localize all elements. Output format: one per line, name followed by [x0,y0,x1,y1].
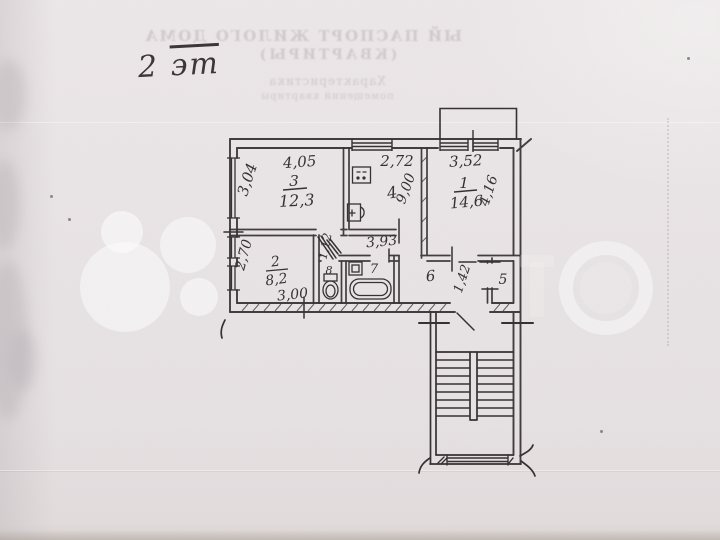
dim-room4-width: 2,72 [379,152,413,170]
dim-room1-width: 3,52 [449,151,483,171]
dim-opening-b: 1,42 [451,263,474,295]
wall-break-squiggle-left [221,320,225,338]
toilet-icon [323,274,338,299]
room2-area: 8,2 [264,271,288,290]
dim-room1-height: 4,16 [476,173,501,209]
stairwell [221,312,535,476]
scanned-floorplan-photo: ЫЙ ПАСПОРТ ЖИЛОГО ДОМА (КВАРТИРЫ) Характ… [0,0,720,540]
stove-icon [353,167,371,183]
room5-number: 5 [499,272,508,288]
balcony-outline [440,109,517,140]
dim-room2-height: 2,70 [232,238,256,273]
dim-room3-height: 3,04 [234,161,261,198]
room7-number: 7 [370,262,379,277]
sink-icon [348,204,365,221]
room3-number: 3 [289,172,299,190]
window-room1-balcony-door [440,130,498,152]
dim-corridor-length: 3,93 [365,233,398,252]
dim-room2-extra: 3,00 [276,285,309,304]
handwritten-labels: 4,05 3,04 3 12,3 2,72 4 9,00 3,52 1 14,6… [232,151,507,304]
floorplan-drawing: 4,05 3,04 3 12,3 2,72 4 9,00 3,52 1 14,6… [0,0,720,540]
room4-area: 9,00 [393,171,419,206]
room1-number: 1 [459,174,469,192]
bathtub-icon [350,279,391,299]
door-leaf-entrance [457,313,474,330]
window-kitchen [352,139,392,151]
stair-treads [436,360,513,416]
room2-number: 2 [269,253,281,270]
room6-number: 6 [425,267,437,286]
washbasin-icon [349,262,362,275]
ticks-room5-door [480,262,500,289]
dim-room3-width: 4,05 [281,152,317,172]
room3-area: 12,3 [278,190,315,211]
room8-number: 8 [326,264,333,277]
